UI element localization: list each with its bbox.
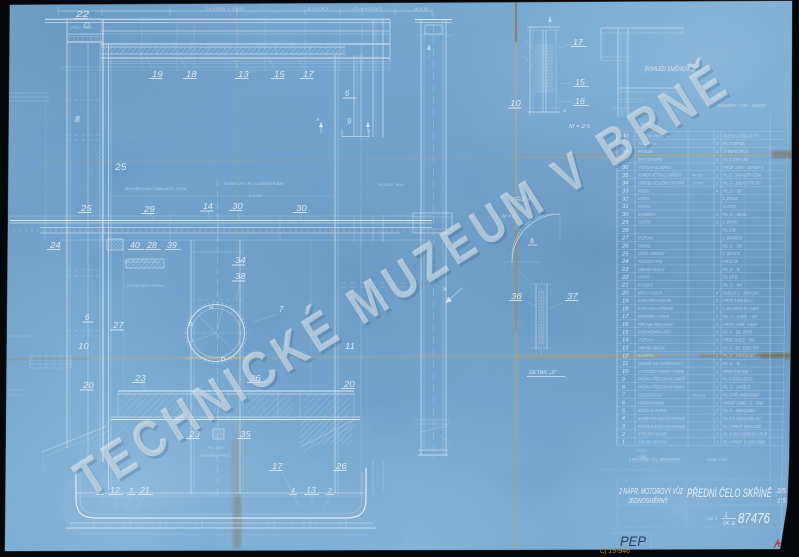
svg-text:IX a: IX a — [723, 521, 736, 527]
svg-text:PL 2 · B: PL 2 · B — [723, 267, 740, 272]
svg-text:10: 10 — [78, 341, 89, 351]
svg-text:PL 3 PROF 260×1240: PL 3 PROF 260×1240 — [723, 424, 761, 429]
svg-text:JÍKA PŘEDLAKÝ OBKLAD Č. 1760b: JÍKA PŘEDLAKÝ OBKLAD Č. 1760b — [123, 186, 187, 191]
svg-text:9: 9 — [347, 117, 352, 126]
svg-text:S.648 / Z.649: S.648 / Z.649 — [707, 457, 728, 462]
svg-text:NOSNÍK POD VELKÝM OTVOREM: NOSNÍK POD VELKÝM OTVOREM — [638, 416, 685, 421]
svg-text:LIŠTA: LIŠTA — [638, 196, 649, 201]
svg-text:4×425: 4×425 — [692, 174, 704, 178]
svg-text:32: 32 — [622, 196, 629, 202]
svg-text:ROZM. 490: ROZM. 490 — [378, 183, 404, 187]
svg-text:L 45×30: L 45×30 — [723, 220, 738, 225]
svg-text:PÁSNICE: PÁSNICE — [638, 283, 654, 288]
svg-text:PL 2 · 140×270 ČSN: PL 2 · 140×270 ČSN — [723, 173, 762, 178]
svg-text:40: 40 — [130, 241, 141, 250]
svg-text:VZPĚRA: VZPĚRA — [638, 220, 651, 225]
svg-text:20: 20 — [621, 291, 629, 297]
svg-text:PL 2 · DL 1455: PL 2 · DL 1455 — [723, 330, 753, 335]
svg-text:1: 1 — [716, 440, 718, 445]
svg-text:24: 24 — [621, 259, 629, 265]
svg-text:415: 415 — [414, 6, 430, 11]
svg-text:PL 3 · 40: PL 3 · 40 — [723, 283, 743, 288]
svg-text:6: 6 — [85, 313, 90, 322]
svg-text:23: 23 — [134, 373, 146, 383]
svg-text:1: 1 — [716, 173, 718, 178]
svg-text:1: 1 — [716, 133, 718, 138]
svg-text:18: 18 — [622, 306, 629, 312]
svg-text:VÝPLŇ: VÝPLŇ — [638, 275, 650, 280]
svg-text:PL 2 · DL 1350 PR: PL 2 · DL 1350 PR — [723, 345, 759, 350]
svg-text:PL 3 40×40: PL 3 40×40 — [723, 141, 745, 146]
svg-text:PL 2 150×150: PL 2 150×150 — [723, 157, 749, 162]
svg-text:TĚSNĚNÍ PRYŽ: TĚSNĚNÍ PRYŽ — [200, 453, 231, 458]
svg-text:2: 2 — [327, 488, 332, 495]
svg-text:4: 4 — [291, 488, 295, 495]
svg-text:PL 3 260×2(380)×170 B: PL 3 260×2(380)×170 B — [723, 432, 767, 437]
svg-text:PŘÍČKA: PŘÍČKA — [638, 204, 651, 209]
svg-text:4: 4 — [622, 416, 625, 422]
svg-text:27: 27 — [112, 320, 125, 330]
svg-text:29: 29 — [143, 204, 155, 214]
svg-text:1: 1 — [622, 440, 625, 446]
svg-text:PROF 1480 · 1455: PROF 1480 · 1455 — [723, 322, 757, 327]
svg-text:37: 37 — [567, 291, 579, 301]
svg-text:1: 1 — [716, 392, 718, 397]
svg-text:PL 3 · 45 B: PL 3 · 45 B — [723, 212, 746, 217]
svg-text:30: 30 — [232, 201, 243, 211]
svg-text:2×1280 = 2560: 2×1280 = 2560 — [204, 6, 247, 11]
svg-text:Z MĚN PŘED. ČEL. JEDNOSMĚR.: Z MĚN PŘED. ČEL. JEDNOSMĚR. — [628, 457, 681, 462]
svg-text:9: 9 — [622, 377, 625, 383]
svg-text:25: 25 — [80, 203, 92, 213]
svg-text:PÁSEK: PÁSEK — [638, 188, 650, 193]
svg-text:21: 21 — [621, 283, 629, 289]
svg-text:13: 13 — [238, 69, 249, 79]
svg-text:1: 1 — [716, 416, 718, 421]
svg-text:SLOUPEK: SLOUPEK — [638, 353, 654, 358]
svg-text:38: 38 — [235, 271, 246, 281]
svg-text:∅ 80/45 PL 5: ∅ 80/45 PL 5 — [723, 149, 749, 154]
svg-text:5: 5 — [622, 408, 625, 414]
svg-text:34: 34 — [622, 181, 629, 187]
svg-text:16: 16 — [575, 97, 586, 106]
svg-text:1:5: 1:5 — [777, 498, 786, 505]
svg-text:VÝZTUHA: VÝZTUHA — [638, 337, 653, 342]
svg-text:ROZPĚRKA HORNÍ: ROZPĚRKA HORNÍ — [638, 314, 669, 319]
svg-text:1: 1 — [716, 361, 718, 366]
svg-text:A: A — [315, 117, 319, 122]
svg-text:17: 17 — [272, 461, 284, 471]
svg-text:1: 1 — [716, 369, 718, 374]
svg-text:27: 27 — [621, 236, 630, 242]
svg-text:24: 24 — [49, 240, 61, 250]
svg-text:30: 30 — [296, 203, 307, 213]
svg-text:PŘÍČKA PŘES ROHY OKEN: PŘÍČKA PŘES ROHY OKEN — [638, 385, 685, 390]
svg-text:34: 34 — [235, 255, 246, 265]
svg-text:PROF 1440 SV ⌀: PROF 1440 SV ⌀ — [723, 298, 753, 303]
svg-text:ČELNÍ PLECH: ČELNÍ PLECH — [638, 392, 663, 397]
svg-text:PODOKENNÍ LIŠTA: PODOKENNÍ LIŠTA — [638, 330, 671, 335]
svg-text:14: 14 — [203, 201, 213, 211]
svg-text:19: 19 — [622, 298, 629, 304]
svg-text:33: 33 — [622, 189, 629, 195]
svg-text:∅ 530: ∅ 530 — [692, 181, 704, 185]
svg-text:L 45×45 B: L 45×45 B — [723, 235, 742, 240]
svg-text:PL 3 B: PL 3 B — [723, 228, 736, 233]
svg-text:RÁM OKNA KRAJNÍ: RÁM OKNA KRAJNÍ — [638, 298, 672, 303]
svg-text:PŘÍČNÍK NAD VELKÝM OTVOREM: PŘÍČNÍK NAD VELKÝM OTVOREM — [638, 424, 685, 429]
svg-text:1: 1 — [716, 385, 718, 390]
svg-text:15: 15 — [274, 69, 285, 79]
svg-text:HORNÍ NOSNÍK: HORNÍ NOSNÍK — [638, 400, 665, 405]
svg-text:OTVOR PRO VYPÍNAČ: OTVOR PRO VYPÍNAČ — [127, 283, 165, 288]
svg-text:20: 20 — [82, 380, 94, 390]
svg-text:PROF ČSN 425: PROF ČSN 425 — [723, 369, 749, 374]
svg-text:PL 4 · B: PL 4 · B — [723, 361, 740, 366]
svg-text:17: 17 — [573, 38, 584, 47]
svg-text:PRUŽNÁ PODLOŽKA: PRUŽNÁ PODLOŽKA — [124, 259, 161, 264]
svg-text:PL 2 · 30: PL 2 · 30 — [723, 188, 743, 193]
svg-text:15: 15 — [622, 330, 629, 336]
svg-text:1: 1 — [716, 157, 718, 162]
svg-text:PL 3 ČSN 11373: PL 3 ČSN 11373 — [723, 377, 753, 382]
svg-text:20: 20 — [343, 379, 355, 389]
svg-text:6: 6 — [530, 238, 534, 245]
svg-text:1: 1 — [716, 322, 718, 327]
svg-text:ROZPĚRKA: ROZPĚRKA — [638, 212, 656, 217]
svg-text:15: 15 — [575, 78, 586, 87]
svg-text:2/5: 2/5 — [776, 488, 786, 495]
svg-text:L 30×4 B: L 30×4 B — [723, 251, 740, 256]
svg-text:PL 3 · 120×1240: PL 3 · 120×1240 — [723, 353, 755, 358]
svg-text:22: 22 — [621, 275, 629, 281]
svg-text:L 25×25: L 25×25 — [723, 196, 738, 201]
svg-text:PŮV: PŮV — [637, 448, 648, 453]
svg-text:LIŠTA OKENNÍ: LIŠTA OKENNÍ — [638, 251, 665, 256]
svg-text:13: 13 — [622, 346, 629, 352]
svg-text:3: 3 — [622, 424, 625, 430]
svg-text:7: 7 — [279, 305, 284, 314]
svg-text:PROF 1487 · 40×40×4: PROF 1487 · 40×40×4 — [723, 165, 764, 170]
svg-text:DETAIL „X“: DETAIL „X“ — [529, 370, 558, 376]
svg-text:25×3 B: 25×3 B — [691, 393, 706, 397]
svg-text:19: 19 — [152, 69, 163, 79]
svg-text:PL 3 · 260×2380: PL 3 · 260×2380 — [723, 408, 755, 413]
svg-text:1490: 1490 — [248, 193, 263, 198]
svg-text:PO 300: PO 300 — [208, 446, 224, 450]
svg-text:1: 1 — [716, 314, 718, 319]
svg-text:12: 12 — [622, 353, 629, 359]
svg-text:1: 1 — [716, 345, 718, 350]
svg-text:18: 18 — [186, 69, 197, 79]
svg-text:NOSNÍK ON SVAŘOVANÝ L: NOSNÍK ON SVAŘOVANÝ L — [638, 361, 685, 366]
svg-text:26: 26 — [621, 243, 629, 249]
svg-text:OBRUBA BOČNÍ: OBRUBA BOČNÍ — [638, 345, 665, 350]
svg-text:PL 3 PŘ 1455×2560: PL 3 PŘ 1455×2560 — [723, 392, 759, 397]
svg-text:10: 10 — [622, 369, 629, 375]
svg-text:13: 13 — [306, 486, 317, 495]
svg-text:OBRUBA VELKÉHO OTVORU: OBRUBA VELKÉHO OTVORU — [638, 180, 685, 185]
svg-text:16: 16 — [622, 322, 629, 328]
svg-text:14: 14 — [622, 338, 629, 344]
svg-text:1: 1 — [716, 377, 718, 382]
svg-text:29: 29 — [621, 220, 629, 226]
svg-text:PLECH 2 · 260×340: PLECH 2 · 260×340 — [723, 290, 759, 295]
svg-text:PŘÍČKA PŘES ROHY DVEŘÍ: PŘÍČKA PŘES ROHY DVEŘÍ — [638, 377, 686, 382]
svg-text:22: 22 — [75, 9, 90, 19]
svg-text:RÁMEK VĚTRACÍ MŘÍŽKY: RÁMEK VĚTRACÍ MŘÍŽKY — [638, 173, 683, 178]
svg-text:21: 21 — [139, 486, 150, 495]
svg-text:36: 36 — [511, 291, 522, 301]
svg-text:28: 28 — [621, 228, 629, 234]
svg-text:L 30×30×4 DL 1420: L 30×30×4 DL 1420 — [723, 306, 759, 311]
svg-text:L: L — [725, 512, 729, 519]
svg-text:RÁM OKNA STŘEDNÍ: RÁM OKNA STŘEDNÍ — [638, 306, 674, 311]
svg-text:PL 4 PROF 1×260×2560: PL 4 PROF 1×260×2560 — [723, 440, 766, 445]
svg-text:VÝZTUHA: VÝZTUHA — [638, 235, 653, 240]
svg-text:VÝZTUŽNÝ PROFIL HORNÍ: VÝZTUŽNÝ PROFIL HORNÍ — [638, 369, 685, 374]
svg-text:25: 25 — [621, 251, 629, 257]
svg-text:35: 35 — [240, 429, 251, 439]
svg-text:PŘÍČNÍK POD OKNY: PŘÍČNÍK POD OKNY — [638, 322, 674, 327]
svg-text:6: 6 — [345, 89, 350, 98]
svg-text:31: 31 — [622, 204, 629, 210]
svg-text:1: 1 — [716, 337, 718, 342]
svg-text:OBRUBA DOLNÍ: OBRUBA DOLNÍ — [638, 267, 665, 272]
svg-text:PLECH 2 ČSN 11373: PLECH 2 ČSN 11373 — [723, 133, 759, 138]
svg-text:PL 3 B 260×1240 SV: PL 3 B 260×1240 SV — [723, 416, 762, 421]
svg-text:ČELNÍK SPODNÍ: ČELNÍK SPODNÍ — [638, 440, 667, 445]
svg-text:PROFIL: PROFIL — [638, 243, 652, 248]
svg-text:1: 1 — [716, 424, 718, 429]
svg-text:25: 25 — [114, 162, 127, 172]
svg-text:PL 2 · 35: PL 2 · 35 — [723, 243, 743, 248]
svg-text:1: 1 — [716, 180, 718, 185]
svg-text:28: 28 — [146, 241, 158, 250]
svg-text:PL 3 · 165×1770 SV: PL 3 · 165×1770 SV — [723, 180, 762, 185]
svg-text:JEDNOSMĚRNÝ: JEDNOSMĚRNÝ — [627, 496, 668, 505]
svg-text:1: 1 — [716, 330, 718, 335]
svg-text:11: 11 — [622, 361, 629, 367]
svg-text:1: 1 — [716, 212, 718, 217]
svg-text:KRYCÍ PLECH: KRYCÍ PLECH — [638, 290, 663, 295]
svg-text:87476: 87476 — [738, 511, 771, 527]
svg-text:26: 26 — [335, 461, 347, 471]
svg-text:8: 8 — [622, 385, 625, 391]
svg-text:Čj 15-946: Čj 15-946 — [600, 546, 630, 555]
svg-text:PŘEDNÍ ČELO SKŘÍNĚ: PŘEDNÍ ČELO SKŘÍNĚ — [687, 487, 772, 500]
svg-text:PL 15 B: PL 15 B — [723, 275, 738, 280]
svg-text:PL 3 · 1455 · 40: PL 3 · 1455 · 40 — [723, 314, 757, 319]
svg-text:1200: 1200 — [306, 6, 330, 11]
svg-text:1: 1 — [716, 220, 718, 225]
svg-text:STŘEDNÍ SLOUP: STŘEDNÍ SLOUP — [638, 432, 667, 437]
svg-text:39: 39 — [167, 241, 178, 250]
svg-text:2: 2 — [621, 432, 625, 438]
svg-text:10: 10 — [510, 98, 521, 108]
svg-text:1: 1 — [716, 432, 718, 437]
svg-text:PRYŽ 25: PRYŽ 25 — [723, 259, 738, 264]
svg-text:2 NÁPR. MOTOROVÝ VŮZ: 2 NÁPR. MOTOROVÝ VŮZ — [618, 486, 683, 496]
svg-text:23: 23 — [621, 267, 629, 273]
svg-text:1: 1 — [716, 353, 718, 358]
svg-text:2×620: 2×620 — [349, 6, 384, 11]
svg-text:BOČNÍ SLOUPEK: BOČNÍ SLOUPEK — [638, 408, 668, 413]
svg-text:6: 6 — [622, 400, 625, 406]
svg-text:PROF 1480 · 2 · 560: PROF 1480 · 2 · 560 — [723, 400, 764, 405]
svg-text:PEP: PEP — [620, 534, 646, 549]
svg-text:PL 3 · 1455 B: PL 3 · 1455 B — [723, 385, 751, 390]
svg-text:B: B — [563, 108, 566, 113]
svg-text:8: 8 — [75, 114, 80, 124]
svg-text:30: 30 — [622, 212, 629, 218]
svg-text:ROZM. OTV. PO SVAŘENÍ RÁMU: ROZM. OTV. PO SVAŘENÍ RÁMU — [224, 181, 284, 186]
svg-text:ev. č.: ev. č. — [708, 516, 719, 522]
svg-text:TĚSNÍCÍ PÁS: TĚSNÍCÍ PÁS — [638, 259, 662, 264]
svg-text:PROF DOLE · 780: PROF DOLE · 780 — [723, 337, 755, 342]
svg-text:U 1470: U 1470 — [723, 204, 736, 209]
svg-text:17: 17 — [303, 69, 315, 79]
